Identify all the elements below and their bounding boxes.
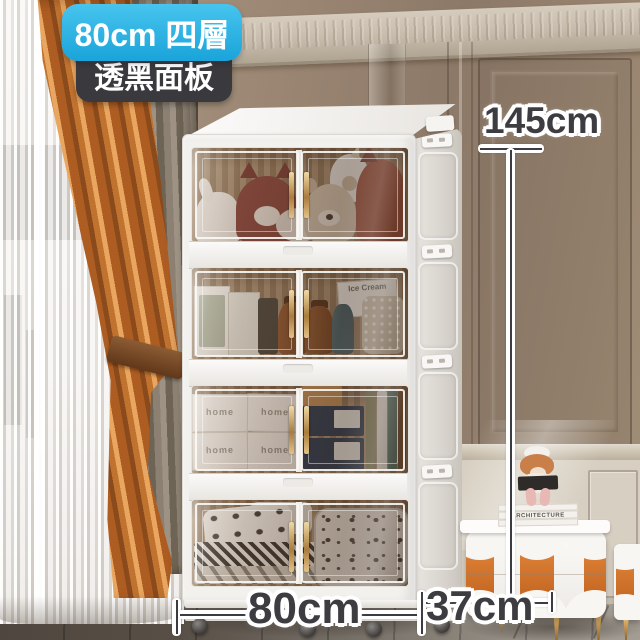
folding-latch: [422, 464, 453, 479]
side-panel-inset: [418, 152, 458, 240]
height-label: 145cm: [484, 100, 599, 142]
cabinet-top-fold-handle: [426, 115, 455, 132]
door-divider: [296, 270, 302, 358]
door-divider: [296, 502, 302, 584]
door-pane-right: [301, 151, 405, 239]
door-handle-right: [304, 172, 309, 218]
cabinet-tier-2-bottles: Ice Cream: [191, 267, 409, 361]
depth-line-right-tick: [548, 590, 556, 614]
cabinet-tier-3-boxes: home home home home: [191, 385, 409, 475]
door-pane-right: [301, 503, 405, 583]
side-panel-inset: [418, 262, 458, 350]
figurine-leg: [525, 488, 537, 507]
tier-frame-band: [189, 473, 407, 501]
side-panel-inset: [418, 372, 458, 460]
height-measure-line: [506, 148, 515, 616]
door-handle-right: [304, 406, 309, 454]
drawer-seam: [466, 574, 606, 575]
figurine-leg: [539, 488, 551, 507]
tier-frame-band: [189, 359, 407, 387]
cabinet-side-panel: [410, 128, 462, 604]
side-panel-inset: [418, 482, 458, 570]
door-pane-right: [301, 271, 405, 357]
cabinet-tier-1-plush-toys: [191, 147, 409, 243]
door-handle-right: [304, 522, 309, 572]
door-divider: [296, 150, 302, 240]
caster-wheel: [192, 618, 208, 634]
width-label: 80cm: [248, 584, 361, 634]
reading-girl-figurine: [516, 446, 562, 508]
caster-wheel: [366, 621, 382, 637]
door-handle-left: [289, 406, 294, 454]
sheer-curtain-hem: [0, 596, 184, 624]
cabinet-front: Ice Cream home home home home: [182, 134, 416, 604]
folding-latch: [422, 244, 453, 259]
door-pane-left: [195, 271, 299, 357]
door-pane-right: [301, 389, 405, 471]
folding-latch: [422, 354, 453, 369]
door-handle-right: [304, 290, 309, 338]
nightstand-orange-motif: [584, 544, 606, 606]
side-table-clipped: [614, 544, 640, 620]
depth-line-left-tick: [417, 590, 426, 636]
door-pane-left: [195, 389, 299, 471]
sheer-curtain-edge: [34, 0, 44, 624]
depth-label: 37cm: [426, 582, 533, 630]
figurine-open-book: [518, 475, 558, 490]
door-pane-left: [195, 503, 299, 583]
cabinet-tier-4-bedding: [191, 499, 409, 587]
door-handle-left: [289, 172, 294, 218]
door-pane-left: [195, 151, 299, 239]
product-photo-scene: Ice Cream home home home home: [0, 0, 640, 640]
door-handle-left: [289, 522, 294, 572]
size-badge: 80cm 四層: [62, 4, 242, 61]
tier-frame-band: [189, 241, 407, 269]
nightstand-orange-motif: [616, 554, 634, 610]
door-divider: [296, 388, 302, 472]
door-handle-left: [289, 290, 294, 338]
